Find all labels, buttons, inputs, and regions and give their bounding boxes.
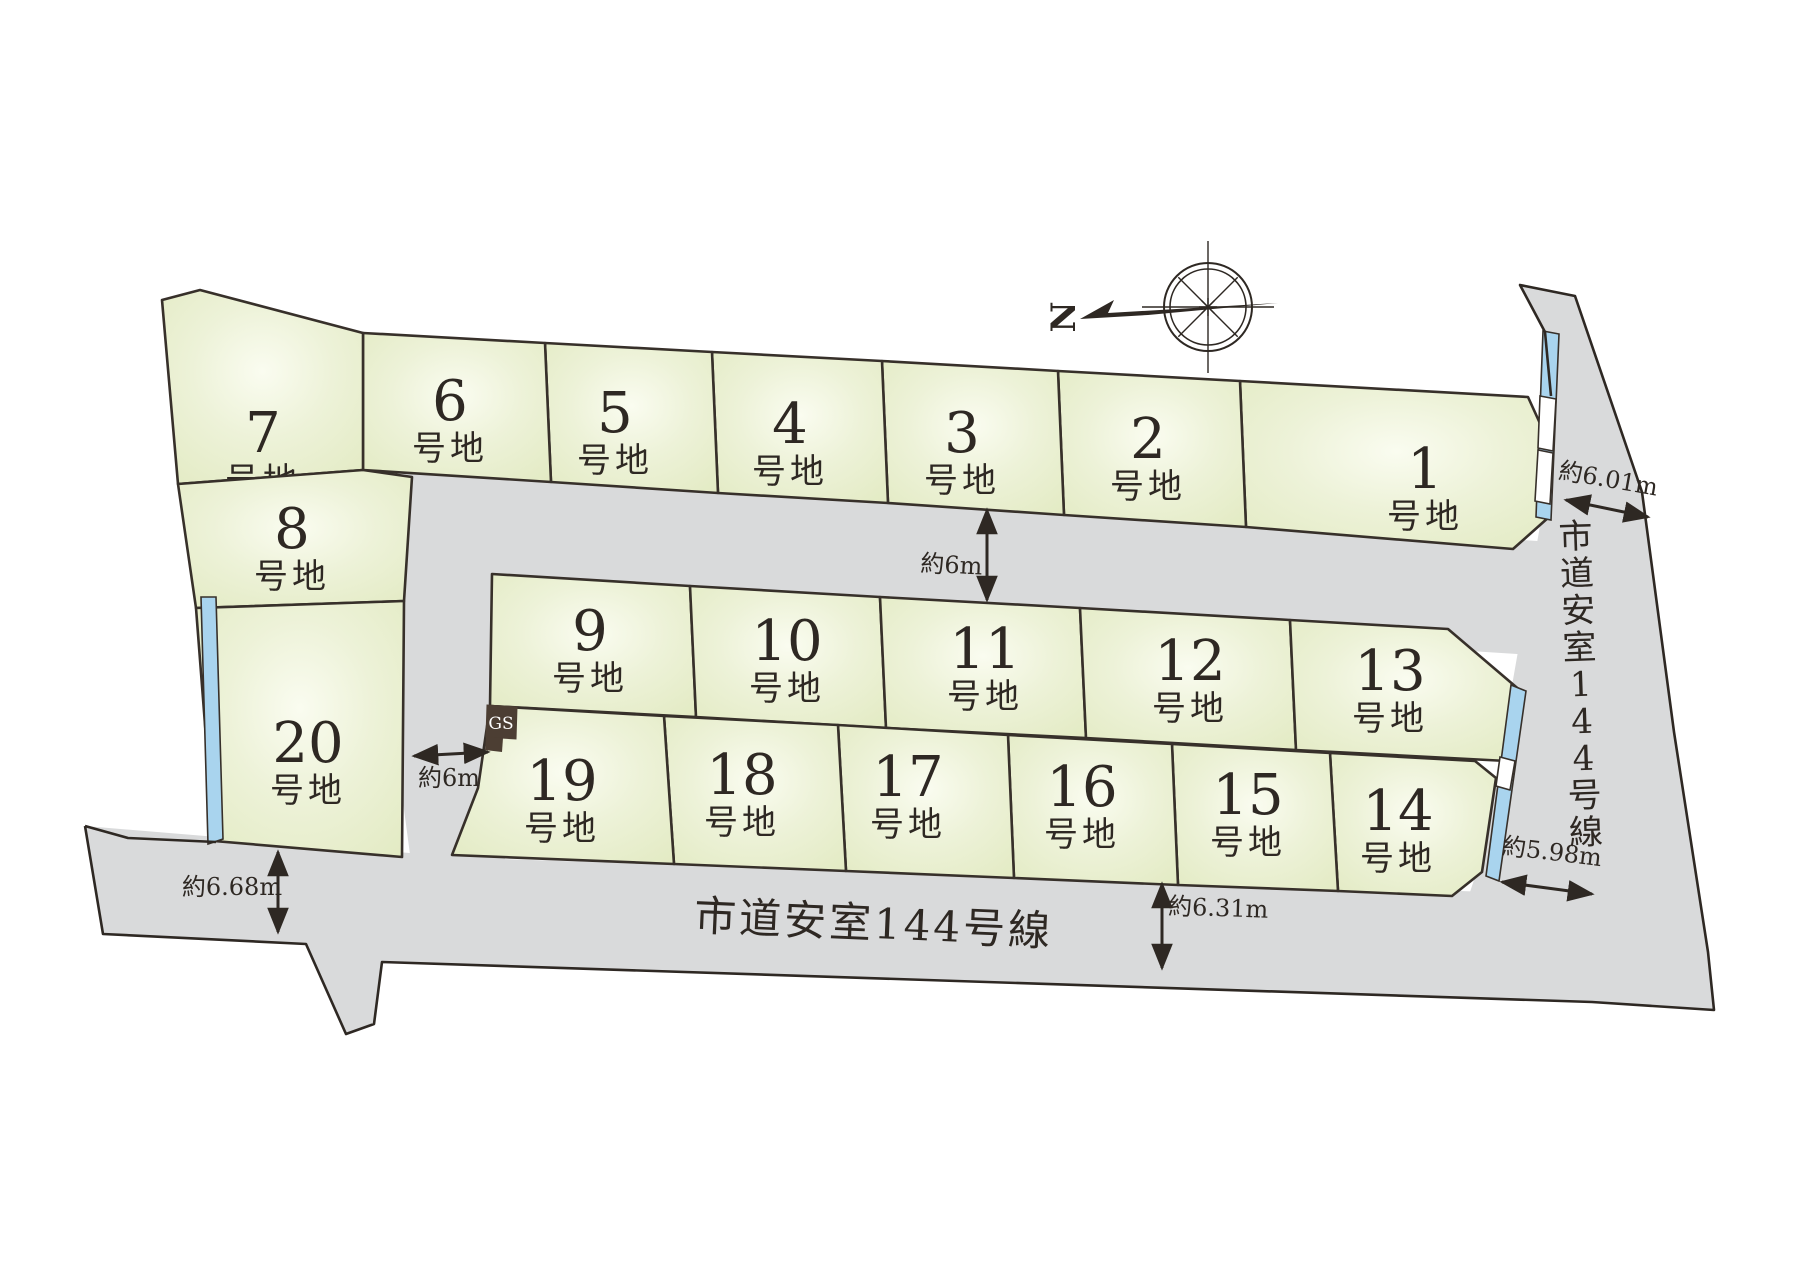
lot-9: 9号地 <box>490 574 696 717</box>
lot-5-suffix: 号地 <box>577 441 653 481</box>
compass-needle-west <box>1080 300 1278 319</box>
lot-10-suffix: 号地 <box>749 669 825 709</box>
lot-12-suffix: 号地 <box>1152 689 1228 729</box>
lot-14: 14号地 <box>1330 753 1496 896</box>
lot-19-number: 19 <box>526 749 597 814</box>
lot-9-suffix: 号地 <box>552 659 628 699</box>
site-plan-map: 1号地2号地3号地4号地5号地6号地7号地8号地9号地10号地11号地12号地1… <box>0 0 1800 1272</box>
lot-16-number: 16 <box>1046 755 1117 820</box>
lot-13-suffix: 号地 <box>1352 699 1428 739</box>
lot-6-number: 6 <box>432 369 468 434</box>
water-strip-lot1-gap1 <box>1538 396 1556 451</box>
lot-18-number: 18 <box>706 743 777 808</box>
lot-9-number: 9 <box>572 599 608 664</box>
compass-rose-icon: N <box>1044 241 1278 373</box>
lot-15: 15号地 <box>1172 744 1338 891</box>
lot-5-number: 5 <box>597 381 633 446</box>
lot-3-suffix: 号地 <box>924 461 1000 501</box>
lot-2-number: 2 <box>1130 407 1166 472</box>
lot-17-suffix: 号地 <box>870 805 946 845</box>
lot-2: 2号地 <box>1058 371 1246 527</box>
lot-1: 1号地 <box>1240 381 1553 549</box>
compass-north-label: N <box>1044 301 1084 332</box>
lot-8-suffix: 号地 <box>254 557 330 597</box>
lot-17: 17号地 <box>838 725 1014 878</box>
lot-19: 19号地 <box>452 706 674 864</box>
lot-11: 11号地 <box>880 597 1086 738</box>
lot-4: 4号地 <box>712 352 888 503</box>
dimension-text: 約6.68m <box>182 873 282 901</box>
lot-10-number: 10 <box>751 609 822 674</box>
lot-8: 8号地 <box>178 470 412 608</box>
lot-16-suffix: 号地 <box>1044 815 1120 855</box>
gs-box-foot <box>485 737 503 752</box>
lot-14-suffix: 号地 <box>1360 839 1436 879</box>
dimension-text: 約6.31m <box>1168 892 1269 923</box>
lot-15-number: 15 <box>1212 763 1283 828</box>
lot-7: 7号地 <box>162 290 363 501</box>
lot-11-suffix: 号地 <box>947 677 1023 717</box>
lot-6: 6号地 <box>363 333 551 482</box>
lot-12: 12号地 <box>1080 608 1296 750</box>
lot-5: 5号地 <box>545 343 718 493</box>
lot-16: 16号地 <box>1008 735 1178 885</box>
lot-7-number: 7 <box>245 401 281 466</box>
lot-20: 20号地 <box>196 601 404 857</box>
lot-18: 18号地 <box>664 716 846 871</box>
gs-label: GS <box>488 714 513 734</box>
lot-13-number: 13 <box>1354 639 1425 704</box>
lot-12-number: 12 <box>1154 629 1225 694</box>
lot-18-suffix: 号地 <box>704 803 780 843</box>
lot-17-number: 17 <box>872 745 943 810</box>
lot-4-suffix: 号地 <box>752 452 828 492</box>
lot-10: 10号地 <box>690 586 886 728</box>
water-strip-lot1-gap2 <box>1535 450 1553 504</box>
lot-2-suffix: 号地 <box>1110 467 1186 507</box>
compass-point-light <box>1178 301 1214 337</box>
lot-15-suffix: 号地 <box>1210 823 1286 863</box>
dimension-text: 約6m <box>920 549 984 580</box>
dimension-text: 約6m <box>418 764 480 792</box>
lot-1-number: 1 <box>1407 437 1443 502</box>
lot-4-number: 4 <box>772 392 808 457</box>
site-plan-page: 1号地2号地3号地4号地5号地6号地7号地8号地9号地10号地11号地12号地1… <box>0 0 1800 1272</box>
lot-11-number: 11 <box>949 617 1020 682</box>
lot-14-number: 14 <box>1362 779 1433 844</box>
lot-3-number: 3 <box>944 401 980 466</box>
lot-3: 3号地 <box>882 361 1064 515</box>
lot-19-suffix: 号地 <box>524 809 600 849</box>
lot-20-suffix: 号地 <box>270 771 346 811</box>
lot-20-number: 20 <box>272 711 343 776</box>
lot-1-suffix: 号地 <box>1387 497 1463 537</box>
lot-8-number: 8 <box>274 497 310 562</box>
lot-6-suffix: 号地 <box>412 429 488 469</box>
